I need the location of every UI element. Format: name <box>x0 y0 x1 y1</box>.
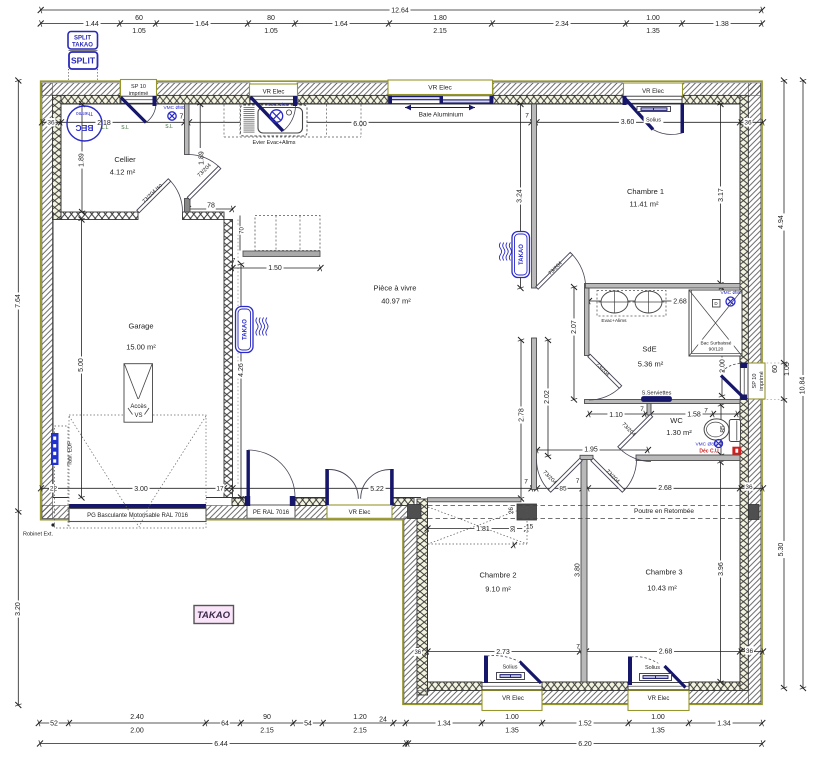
svg-text:VR Elec: VR Elec <box>502 696 524 702</box>
svg-text:2.07: 2.07 <box>571 320 578 334</box>
svg-text:36: 36 <box>744 120 752 127</box>
svg-text:7.64: 7.64 <box>15 294 22 308</box>
svg-text:39: 39 <box>511 525 517 532</box>
svg-text:3.20: 3.20 <box>15 602 22 616</box>
svg-text:TAKAO: TAKAO <box>519 244 525 265</box>
svg-text:Déc C.U: Déc C.U <box>699 448 719 454</box>
svg-text:5.36 m²: 5.36 m² <box>638 360 664 369</box>
svg-text:2.15: 2.15 <box>260 728 274 735</box>
svg-text:VMC Ø80: VMC Ø80 <box>695 442 716 448</box>
svg-text:S.L: S.L <box>165 124 173 130</box>
svg-text:1.44: 1.44 <box>85 21 99 28</box>
svg-text:2.00: 2.00 <box>130 728 144 735</box>
svg-text:1.95: 1.95 <box>584 447 598 454</box>
svg-text:17: 17 <box>216 486 224 493</box>
svg-text:40.97 m²: 40.97 m² <box>381 297 411 306</box>
svg-text:TAKAO: TAKAO <box>72 43 93 49</box>
svg-text:TAKAO: TAKAO <box>197 610 231 621</box>
svg-text:6.00: 6.00 <box>353 121 367 128</box>
svg-text:WC: WC <box>670 416 683 425</box>
svg-text:2.73: 2.73 <box>496 649 510 656</box>
svg-text:1.10: 1.10 <box>609 412 623 419</box>
svg-text:36: 36 <box>414 650 421 656</box>
svg-text:7: 7 <box>576 478 580 485</box>
svg-text:1.00: 1.00 <box>646 15 660 22</box>
svg-text:60: 60 <box>135 15 143 22</box>
svg-text:64: 64 <box>221 721 229 728</box>
svg-text:1.50: 1.50 <box>268 265 282 272</box>
svg-text:Chambre 3: Chambre 3 <box>645 568 682 577</box>
svg-text:7: 7 <box>524 478 528 485</box>
svg-text:4.12 m²: 4.12 m² <box>110 168 136 177</box>
svg-text:imprimé: imprimé <box>759 371 765 391</box>
svg-text:1.64: 1.64 <box>195 21 209 28</box>
svg-text:52: 52 <box>50 721 58 728</box>
svg-text:2.15: 2.15 <box>353 728 367 735</box>
svg-text:3.00: 3.00 <box>134 486 148 493</box>
svg-text:1.34: 1.34 <box>437 721 451 728</box>
svg-text:Baie Aluminium: Baie Aluminium <box>419 111 464 118</box>
svg-text:-15: -15 <box>524 523 534 530</box>
svg-text:3.17: 3.17 <box>718 188 725 202</box>
svg-text:TAKAO: TAKAO <box>242 319 248 340</box>
svg-text:6.44: 6.44 <box>214 741 228 748</box>
svg-text:VMC Ø80: VMC Ø80 <box>720 290 741 296</box>
svg-text:5.30: 5.30 <box>778 543 785 557</box>
svg-text:Robinet Ext.: Robinet Ext. <box>23 531 53 537</box>
svg-text:1.35: 1.35 <box>646 28 660 35</box>
svg-text:VMC Ø80: VMC Ø80 <box>163 105 184 111</box>
svg-text:1.38: 1.38 <box>715 21 729 28</box>
svg-text:3.60: 3.60 <box>621 119 635 126</box>
svg-text:85: 85 <box>559 486 567 493</box>
svg-text:36: 36 <box>745 484 753 491</box>
svg-text:Poutre en Retombée: Poutre en Retombée <box>634 508 694 515</box>
svg-text:VR Elec: VR Elec <box>263 90 285 96</box>
svg-text:SPLIT: SPLIT <box>74 36 91 42</box>
svg-text:4.94: 4.94 <box>778 215 785 229</box>
svg-text:Chambre 2: Chambre 2 <box>479 571 516 580</box>
svg-text:VR Elec: VR Elec <box>648 696 670 702</box>
svg-text:VR Elec: VR Elec <box>642 89 664 95</box>
svg-text:7: 7 <box>180 114 184 121</box>
svg-text:Solius: Solius <box>646 117 661 123</box>
svg-text:90: 90 <box>263 714 271 721</box>
svg-text:PG Basculante Motorisable RAL: PG Basculante Motorisable RAL 7016 <box>87 513 188 519</box>
svg-text:1.35: 1.35 <box>651 728 665 735</box>
svg-text:36: 36 <box>47 120 55 127</box>
svg-text:Cellier: Cellier <box>114 155 136 164</box>
svg-text:Solius: Solius <box>645 665 660 671</box>
svg-text:Tabl. EDF: Tabl. EDF <box>67 441 73 466</box>
svg-text:6.20: 6.20 <box>578 741 592 748</box>
svg-text:5.00: 5.00 <box>78 358 85 372</box>
svg-text:10.43 m²: 10.43 m² <box>647 584 677 593</box>
svg-text:1.20: 1.20 <box>353 714 367 721</box>
svg-text:7: 7 <box>576 643 580 650</box>
svg-text:Evac+Alims: Evac+Alims <box>601 318 627 324</box>
svg-text:7: 7 <box>525 112 529 119</box>
svg-text:54: 54 <box>304 721 312 728</box>
svg-text:2.02: 2.02 <box>544 390 551 404</box>
svg-text:1.64: 1.64 <box>334 21 348 28</box>
svg-text:2.68: 2.68 <box>658 485 672 492</box>
svg-text:60: 60 <box>772 365 779 373</box>
svg-text:1.05: 1.05 <box>132 28 146 35</box>
svg-text:2.15: 2.15 <box>433 28 447 35</box>
svg-text:Solius: Solius <box>503 664 518 670</box>
svg-text:SP 10: SP 10 <box>131 84 146 90</box>
svg-text:5.22: 5.22 <box>370 486 384 493</box>
svg-text:1.34: 1.34 <box>717 721 731 728</box>
svg-text:Garage: Garage <box>128 322 153 331</box>
svg-text:3.80: 3.80 <box>575 563 582 577</box>
svg-text:L.L: L.L <box>102 125 109 131</box>
svg-text:Accès: Accès <box>130 404 146 410</box>
svg-text:VS: VS <box>134 413 142 419</box>
svg-text:Chambre 1: Chambre 1 <box>627 187 664 196</box>
svg-text:24: 24 <box>379 717 387 724</box>
svg-text:VR Elec: VR Elec <box>349 510 371 516</box>
svg-text:1.89: 1.89 <box>79 153 86 167</box>
svg-text:BEC: BEC <box>76 123 94 133</box>
svg-text:70: 70 <box>240 227 246 234</box>
svg-text:7: 7 <box>640 406 644 413</box>
svg-text:2.68: 2.68 <box>673 299 687 306</box>
svg-text:1.58: 1.58 <box>687 412 701 419</box>
svg-text:90/120: 90/120 <box>709 347 724 353</box>
svg-text:2.78: 2.78 <box>519 408 526 422</box>
svg-text:VMC Ø80: VMC Ø80 <box>267 102 288 108</box>
svg-text:9.10 m²: 9.10 m² <box>485 585 511 594</box>
svg-text:1.89: 1.89 <box>199 151 206 165</box>
svg-text:1.30 m²: 1.30 m² <box>666 428 692 437</box>
svg-text:4.26: 4.26 <box>238 363 245 377</box>
svg-text:Thermo: Thermo <box>76 110 93 116</box>
svg-text:2.68: 2.68 <box>659 649 673 656</box>
svg-text:1.80: 1.80 <box>433 15 447 22</box>
svg-text:7: 7 <box>232 257 236 264</box>
svg-text:15.00 m²: 15.00 m² <box>126 343 156 352</box>
svg-text:S.L: S.L <box>121 125 129 131</box>
svg-text:1.00: 1.00 <box>651 714 665 721</box>
svg-text:2.40: 2.40 <box>130 714 144 721</box>
svg-text:36: 36 <box>746 648 754 655</box>
svg-text:22: 22 <box>50 486 58 493</box>
svg-text:1.00: 1.00 <box>505 714 519 721</box>
svg-text:Pièce à vivre: Pièce à vivre <box>374 284 417 293</box>
svg-text:85: 85 <box>719 425 726 433</box>
svg-text:3.96: 3.96 <box>718 562 725 576</box>
svg-text:S.Serviettes: S.Serviettes <box>642 390 672 396</box>
svg-text:7: 7 <box>704 407 708 414</box>
svg-text:SP 10: SP 10 <box>752 374 758 389</box>
svg-text:VR Elec: VR Elec <box>428 84 452 91</box>
svg-text:1.35: 1.35 <box>505 728 519 735</box>
svg-text:10.84: 10.84 <box>800 377 807 395</box>
svg-text:PE RAL 7016: PE RAL 7016 <box>253 510 290 516</box>
svg-text:3.24: 3.24 <box>517 189 524 203</box>
svg-text:80: 80 <box>267 15 275 22</box>
svg-text:1.52: 1.52 <box>578 721 592 728</box>
svg-text:2.34: 2.34 <box>555 21 569 28</box>
svg-text:1.05: 1.05 <box>784 362 791 376</box>
svg-text:11.41 m²: 11.41 m² <box>629 200 659 209</box>
svg-text:Evier Evac+Alims: Evier Evac+Alims <box>253 140 296 146</box>
svg-text:1.05: 1.05 <box>264 28 278 35</box>
svg-text:SdE: SdE <box>642 345 656 354</box>
svg-text:SPLIT: SPLIT <box>71 56 96 66</box>
svg-text:12.64: 12.64 <box>391 8 409 15</box>
svg-text:26: 26 <box>509 507 515 514</box>
svg-text:78: 78 <box>207 203 215 210</box>
